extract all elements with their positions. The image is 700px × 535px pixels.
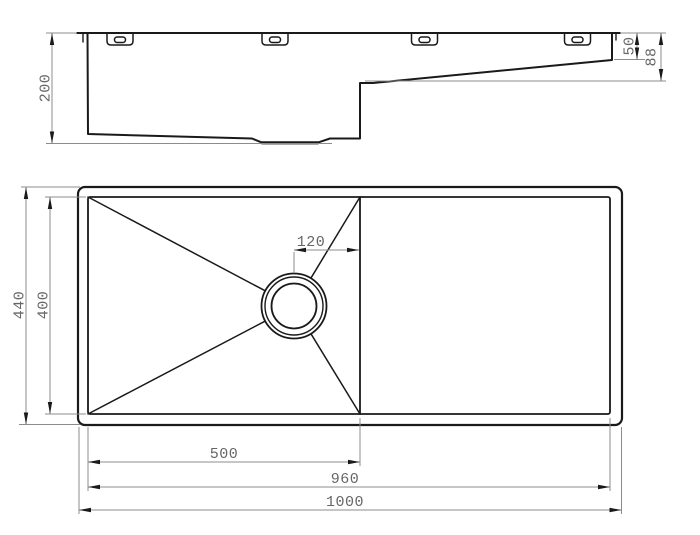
side-view: 200 50 88 xyxy=(37,33,666,144)
arrowhead xyxy=(48,402,52,414)
clip-slot xyxy=(419,37,430,43)
sink-side-profile xyxy=(77,33,620,142)
outer-rim-edge xyxy=(78,187,622,425)
clip-slot xyxy=(115,37,126,43)
technical-drawing-page: 200 50 88 xyxy=(0,0,700,535)
drain-mid-circle xyxy=(265,277,323,335)
dimension-depth-200: 200 xyxy=(37,33,332,144)
arrowhead xyxy=(50,132,54,144)
mounting-clip xyxy=(262,34,288,45)
inner-bowl-edge xyxy=(88,197,610,414)
drain-inner-circle xyxy=(272,284,317,329)
dim-440-label: 440 xyxy=(11,291,28,320)
arrowhead xyxy=(598,485,610,489)
arrowhead xyxy=(348,460,360,464)
plan-view: 440 400 120 500 xyxy=(11,187,622,514)
dimension-inner-960: 960 xyxy=(88,418,610,491)
mounting-clip xyxy=(565,34,591,45)
dim-1000-label: 1000 xyxy=(326,494,364,511)
arrowhead xyxy=(79,508,91,512)
sink-technical-drawing: 200 50 88 xyxy=(0,0,700,535)
arrowhead xyxy=(659,69,663,81)
arrowhead xyxy=(88,485,100,489)
arrowhead xyxy=(50,33,54,45)
dim-200-label: 200 xyxy=(37,74,54,103)
dim-50-label: 50 xyxy=(621,36,638,55)
mounting-clip xyxy=(107,34,133,45)
mounting-clip xyxy=(412,34,438,45)
arrowhead xyxy=(347,248,359,252)
dim-500-label: 500 xyxy=(210,446,239,463)
dimension-bowl-500: 500 xyxy=(88,418,360,491)
clip-slot xyxy=(572,37,583,43)
arrowhead xyxy=(48,197,52,209)
dim-960-label: 960 xyxy=(331,471,360,488)
arrowhead xyxy=(610,508,622,512)
bowl-diagonal xyxy=(88,197,265,291)
bowl-diagonal xyxy=(311,334,360,414)
bowl-diagonal xyxy=(88,321,265,414)
arrowhead xyxy=(24,187,28,199)
arrowhead xyxy=(88,460,100,464)
dim-400-label: 400 xyxy=(35,291,52,320)
clip-slot xyxy=(270,37,281,43)
arrowhead xyxy=(24,413,28,425)
arrowhead xyxy=(659,33,663,45)
dim-88-label: 88 xyxy=(643,47,660,66)
dim-120-label: 120 xyxy=(297,234,326,251)
